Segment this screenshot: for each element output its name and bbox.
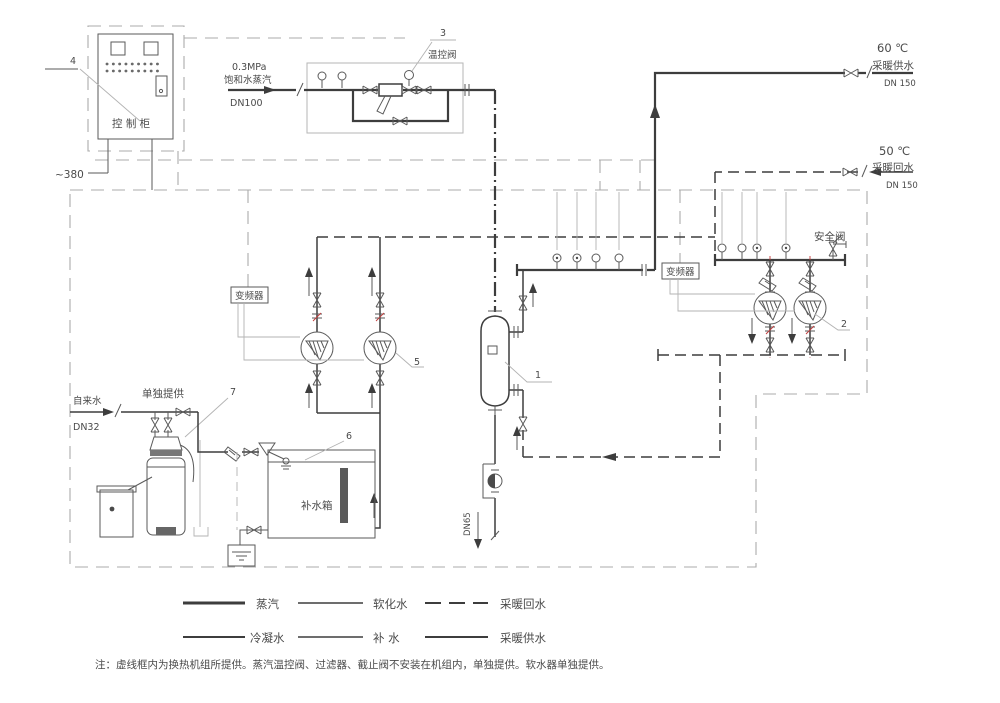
tap-dn-label: DN32 bbox=[73, 422, 100, 433]
tcv-name: 温控阀 bbox=[428, 49, 457, 61]
strainer-icon bbox=[759, 278, 776, 291]
strainer-wedge-icon bbox=[377, 96, 391, 114]
legend-softened: 软化水 bbox=[373, 597, 408, 611]
return-temp-label: 50 ℃ bbox=[879, 144, 910, 158]
supply-dn-label: DN 150 bbox=[884, 79, 916, 89]
legend: 蒸汽 软化水 采暖回水 冷凝水 补 水 采暖供水 bbox=[183, 597, 546, 645]
pump-icon bbox=[794, 292, 826, 324]
condensate-dn-label: DN65 bbox=[463, 512, 473, 536]
heat-exchanger: 1 bbox=[481, 311, 552, 415]
strainer-icon bbox=[799, 278, 816, 291]
gauge-icon bbox=[553, 254, 561, 270]
softener-tag: 7 bbox=[230, 387, 236, 398]
right-pumps-tag: 2 bbox=[841, 319, 847, 330]
steam-inlet-group: 0.3MPa 饱和水蒸汽 DN100 3 温控阀 bbox=[224, 28, 495, 133]
supply-name-label: 采暖供水 bbox=[872, 59, 914, 72]
gauge-icon bbox=[738, 244, 746, 260]
pipe-break-icon bbox=[862, 165, 867, 177]
tank-label: 补水箱 bbox=[301, 499, 333, 512]
cabinet-label: 控 制 柜 bbox=[112, 117, 150, 130]
thermometer-icon bbox=[592, 254, 600, 270]
pipe-break-icon bbox=[297, 83, 303, 96]
tcv-tag: 3 bbox=[440, 28, 446, 39]
condensate-piping: DN65 bbox=[463, 415, 502, 549]
hx-tag: 1 bbox=[535, 370, 541, 381]
valve-icon bbox=[164, 418, 172, 432]
gauge-icon bbox=[753, 244, 761, 260]
strainer-icon bbox=[379, 84, 402, 96]
salt-tank bbox=[100, 490, 133, 537]
steam-medium-label: 饱和水蒸汽 bbox=[224, 74, 272, 86]
vfd-right-label: 变频器 bbox=[666, 266, 695, 278]
gauge-icon bbox=[718, 244, 726, 260]
softener-base bbox=[156, 527, 176, 535]
pump-icon bbox=[754, 292, 786, 324]
tank-tag: 6 bbox=[346, 431, 352, 442]
valve-icon bbox=[844, 69, 858, 77]
supply-temp-label: 60 ℃ bbox=[877, 41, 908, 55]
strainer-icon bbox=[224, 447, 240, 461]
left-pumps-tag: 5 bbox=[414, 357, 420, 368]
return-name-label: 采暖回水 bbox=[872, 161, 914, 174]
makeup-tank-group: 补水箱 6 bbox=[198, 412, 375, 566]
makeup-pump-group: 5 变频器 bbox=[231, 237, 424, 528]
gauge-icon bbox=[573, 254, 581, 270]
pump-discharge-line bbox=[523, 355, 845, 457]
legend-makeup: 补 水 bbox=[373, 631, 400, 645]
legend-condensate: 冷凝水 bbox=[250, 631, 285, 645]
piping-diagram: 控 制 柜 4 ~380 0.3MPa 饱和水蒸汽 DN100 3 温控阀 bbox=[0, 0, 1000, 703]
footnote: 注：虚线框内为换热机组所提供。蒸汽温控阀、过滤器、截止阀不安装在机组内，单独提供… bbox=[95, 658, 610, 671]
supply-piping: 60 ℃ 采暖供水 DN 150 bbox=[517, 41, 916, 332]
flow-arrow-icon bbox=[264, 86, 276, 94]
pump-icon bbox=[364, 332, 396, 364]
float-icon bbox=[283, 458, 289, 464]
legend-supply: 采暖供水 bbox=[500, 631, 546, 645]
power-label: ~380 bbox=[55, 169, 84, 181]
tap-water-label: 自来水 bbox=[73, 395, 102, 407]
thermometer-icon bbox=[615, 254, 623, 270]
softener-flange bbox=[150, 450, 182, 456]
pump-icon bbox=[301, 332, 333, 364]
steam-pressure-label: 0.3MPa bbox=[232, 62, 266, 73]
softener-head bbox=[150, 437, 182, 450]
softener-vessel bbox=[147, 458, 185, 535]
skid-boundary bbox=[70, 26, 867, 567]
steam-dn-label: DN100 bbox=[230, 98, 263, 109]
cabinet-tag: 4 bbox=[70, 56, 76, 67]
gauge-icon bbox=[338, 72, 346, 88]
return-dn-label: DN 150 bbox=[886, 181, 918, 191]
valve-icon bbox=[151, 418, 159, 432]
circulation-pump-group: 安全阀 2 变频器 bbox=[662, 230, 850, 358]
valve-group-frame bbox=[307, 63, 463, 133]
diagram-canvas: 控 制 柜 4 ~380 0.3MPa 饱和水蒸汽 DN100 3 温控阀 bbox=[0, 0, 1000, 703]
softener-group: 自来水 DN32 单独提供 7 bbox=[70, 387, 236, 537]
safety-valve-label: 安全阀 bbox=[814, 230, 846, 243]
valve-icon bbox=[519, 417, 527, 431]
signal-lines bbox=[557, 192, 786, 250]
gauge-icon bbox=[318, 72, 326, 88]
pipe-break-icon bbox=[115, 404, 121, 417]
gauge-icon bbox=[782, 244, 790, 260]
legend-return: 采暖回水 bbox=[500, 597, 546, 611]
level-gauge bbox=[340, 468, 348, 523]
control-cabinet: 控 制 柜 4 ~380 bbox=[45, 34, 173, 190]
vfd-left-label: 变频器 bbox=[235, 290, 264, 302]
return-piping: 50 ℃ 采暖回水 DN 150 bbox=[317, 144, 918, 461]
legend-steam: 蒸汽 bbox=[256, 597, 279, 611]
valve-actuator-icon bbox=[405, 71, 414, 80]
provision-label: 单独提供 bbox=[142, 387, 184, 400]
